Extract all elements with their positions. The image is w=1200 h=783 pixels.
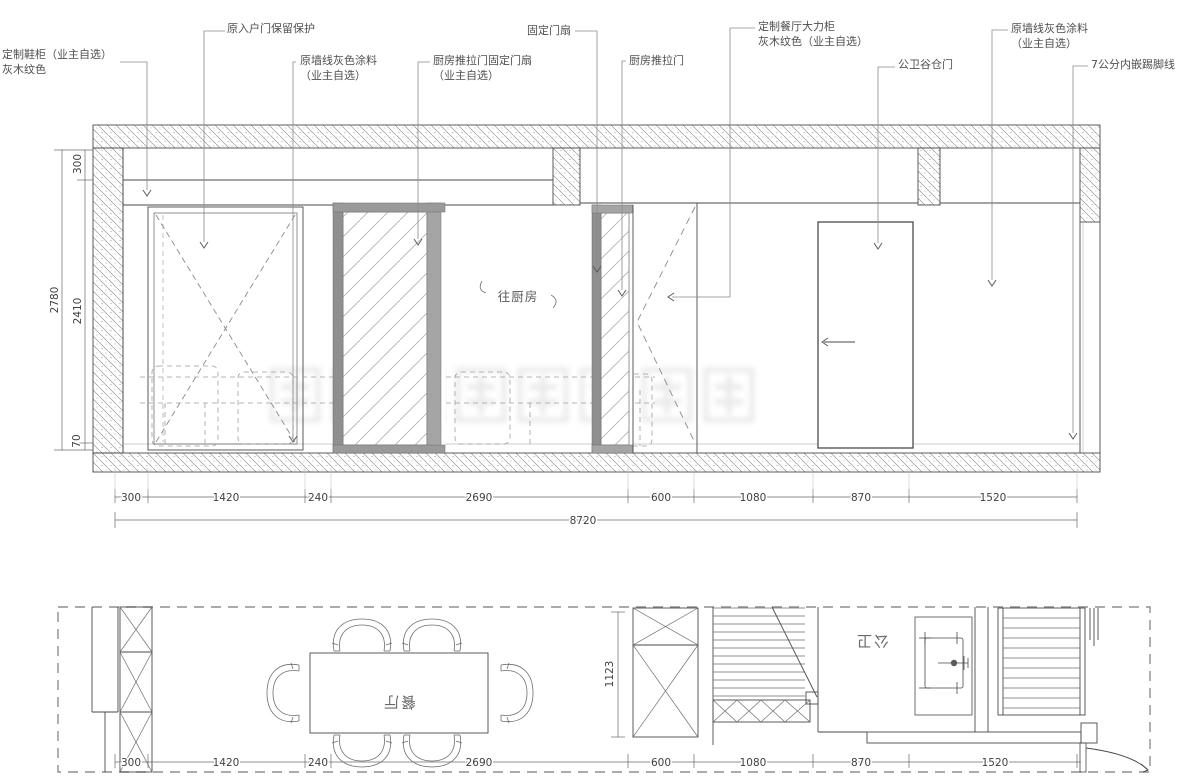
callout-kitchen-sliding-door: 厨房推拉门 — [629, 54, 684, 69]
callout-wall-paint-right: 原墙线灰色涂料 （业主自选） — [1011, 22, 1088, 52]
cad-linework: 往厨房 2780 300 2410 70 300 1420 240 2690 6… — [0, 0, 1200, 783]
plan-swing-door — [1080, 723, 1148, 772]
kitchen-sliding-door-elevation — [333, 203, 445, 453]
dim-elev-3: 2690 — [466, 492, 493, 504]
plan-dining-table — [310, 653, 488, 733]
callout-shoe-cabinet: 定制鞋柜（业主自选） 灰木纹色 — [2, 48, 112, 78]
right-wall-hatch — [1080, 148, 1100, 222]
dim-plan-0: 300 — [121, 757, 141, 769]
elevation-drawing — [93, 125, 1100, 472]
plan-dim-vertical: 1123 — [604, 661, 616, 688]
dim-plan-1: 1420 — [213, 757, 240, 769]
dim-left-middle: 2410 — [72, 298, 84, 325]
callout-kitchen-door-fixed-leaf: 厨房推拉门固定门扇 （业主自选） — [433, 54, 532, 84]
dim-left-top: 300 — [72, 154, 84, 174]
plan-dining-label: 餐厅 — [382, 693, 416, 711]
dim-plan-4: 600 — [651, 757, 671, 769]
left-wall-hatch — [93, 148, 123, 453]
callout-skirting: 7公分内嵌踢脚线 — [1091, 58, 1175, 73]
plan-vanity — [915, 617, 972, 715]
ceiling-slab-hatch — [93, 125, 1100, 148]
dim-plan-5: 1080 — [740, 757, 767, 769]
dim-plan-2: 240 — [308, 757, 328, 769]
to-kitchen-curl-right — [551, 295, 556, 308]
barn-door-elevation — [818, 222, 913, 448]
plan-stairs — [713, 607, 818, 745]
shoe-cabinet-elevation — [148, 207, 303, 450]
callout-entry-door: 原入户门保留保护 — [227, 22, 315, 37]
plan-dimensions — [115, 612, 1081, 768]
plan-counter — [867, 732, 1081, 743]
dim-elev-5: 1080 — [740, 492, 767, 504]
callout-fixed-door-leaf: 固定门扇 — [527, 24, 571, 39]
plan-louver-closet — [998, 608, 1085, 715]
dim-elev-2: 240 — [308, 492, 328, 504]
dim-plan-7: 1520 — [982, 757, 1009, 769]
plan-bath-label: 公卫 — [855, 632, 889, 650]
to-kitchen-curl-left — [480, 281, 486, 293]
fixed-glass-leaf-elevation — [592, 205, 633, 453]
callout-bath-barn-door: 公卫谷仓门 — [898, 58, 953, 73]
callout-dining-cabinet: 定制餐厅大力柜 灰木纹色（业主自选） — [758, 20, 868, 50]
plan-boundary — [58, 607, 1150, 772]
dim-elev-total: 8720 — [570, 515, 597, 527]
beam-hatch-right — [918, 148, 940, 205]
callout-wall-paint-left: 原墙线灰色涂料 （业主自选） — [300, 54, 377, 84]
plan-shoe-cabinet — [120, 607, 152, 772]
dim-left-bottom: 70 — [71, 434, 83, 447]
dim-elev-7: 1520 — [980, 492, 1007, 504]
dim-elev-6: 870 — [851, 492, 871, 504]
dim-left-total: 2780 — [49, 287, 61, 314]
plan-left-wall — [92, 607, 118, 772]
dim-elev-4: 600 — [651, 492, 671, 504]
plan-drawing — [58, 607, 1150, 772]
beam-hatch-left — [553, 148, 580, 205]
dim-elev-0: 300 — [121, 492, 141, 504]
cad-drawing-canvas: 往厨房 2780 300 2410 70 300 1420 240 2690 6… — [0, 0, 1200, 783]
to-kitchen-label: 往厨房 — [498, 289, 539, 304]
floor-slab-hatch — [93, 453, 1100, 472]
dim-elev-1: 1420 — [213, 492, 240, 504]
dim-plan-6: 870 — [851, 757, 871, 769]
plan-tall-cabinet — [633, 608, 698, 737]
dim-plan-3: 2690 — [466, 757, 493, 769]
